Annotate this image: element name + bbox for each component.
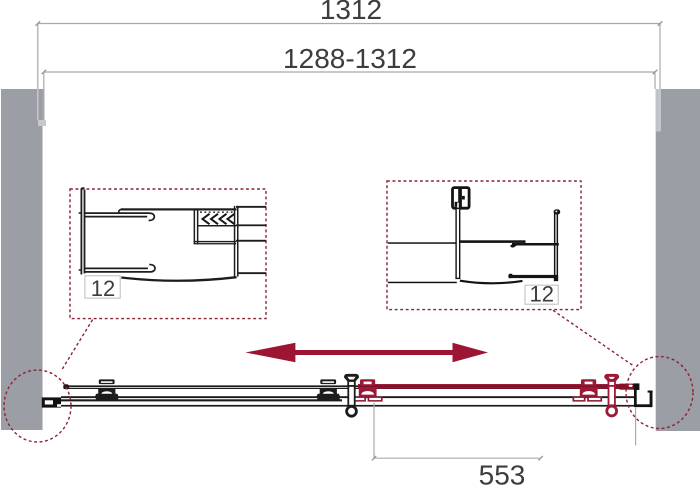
svg-text:12: 12	[91, 276, 115, 301]
svg-text:1288-1312: 1288-1312	[283, 43, 417, 74]
svg-text:553: 553	[479, 460, 526, 485]
svg-text:1312: 1312	[320, 0, 382, 25]
svg-text:12: 12	[530, 282, 554, 307]
